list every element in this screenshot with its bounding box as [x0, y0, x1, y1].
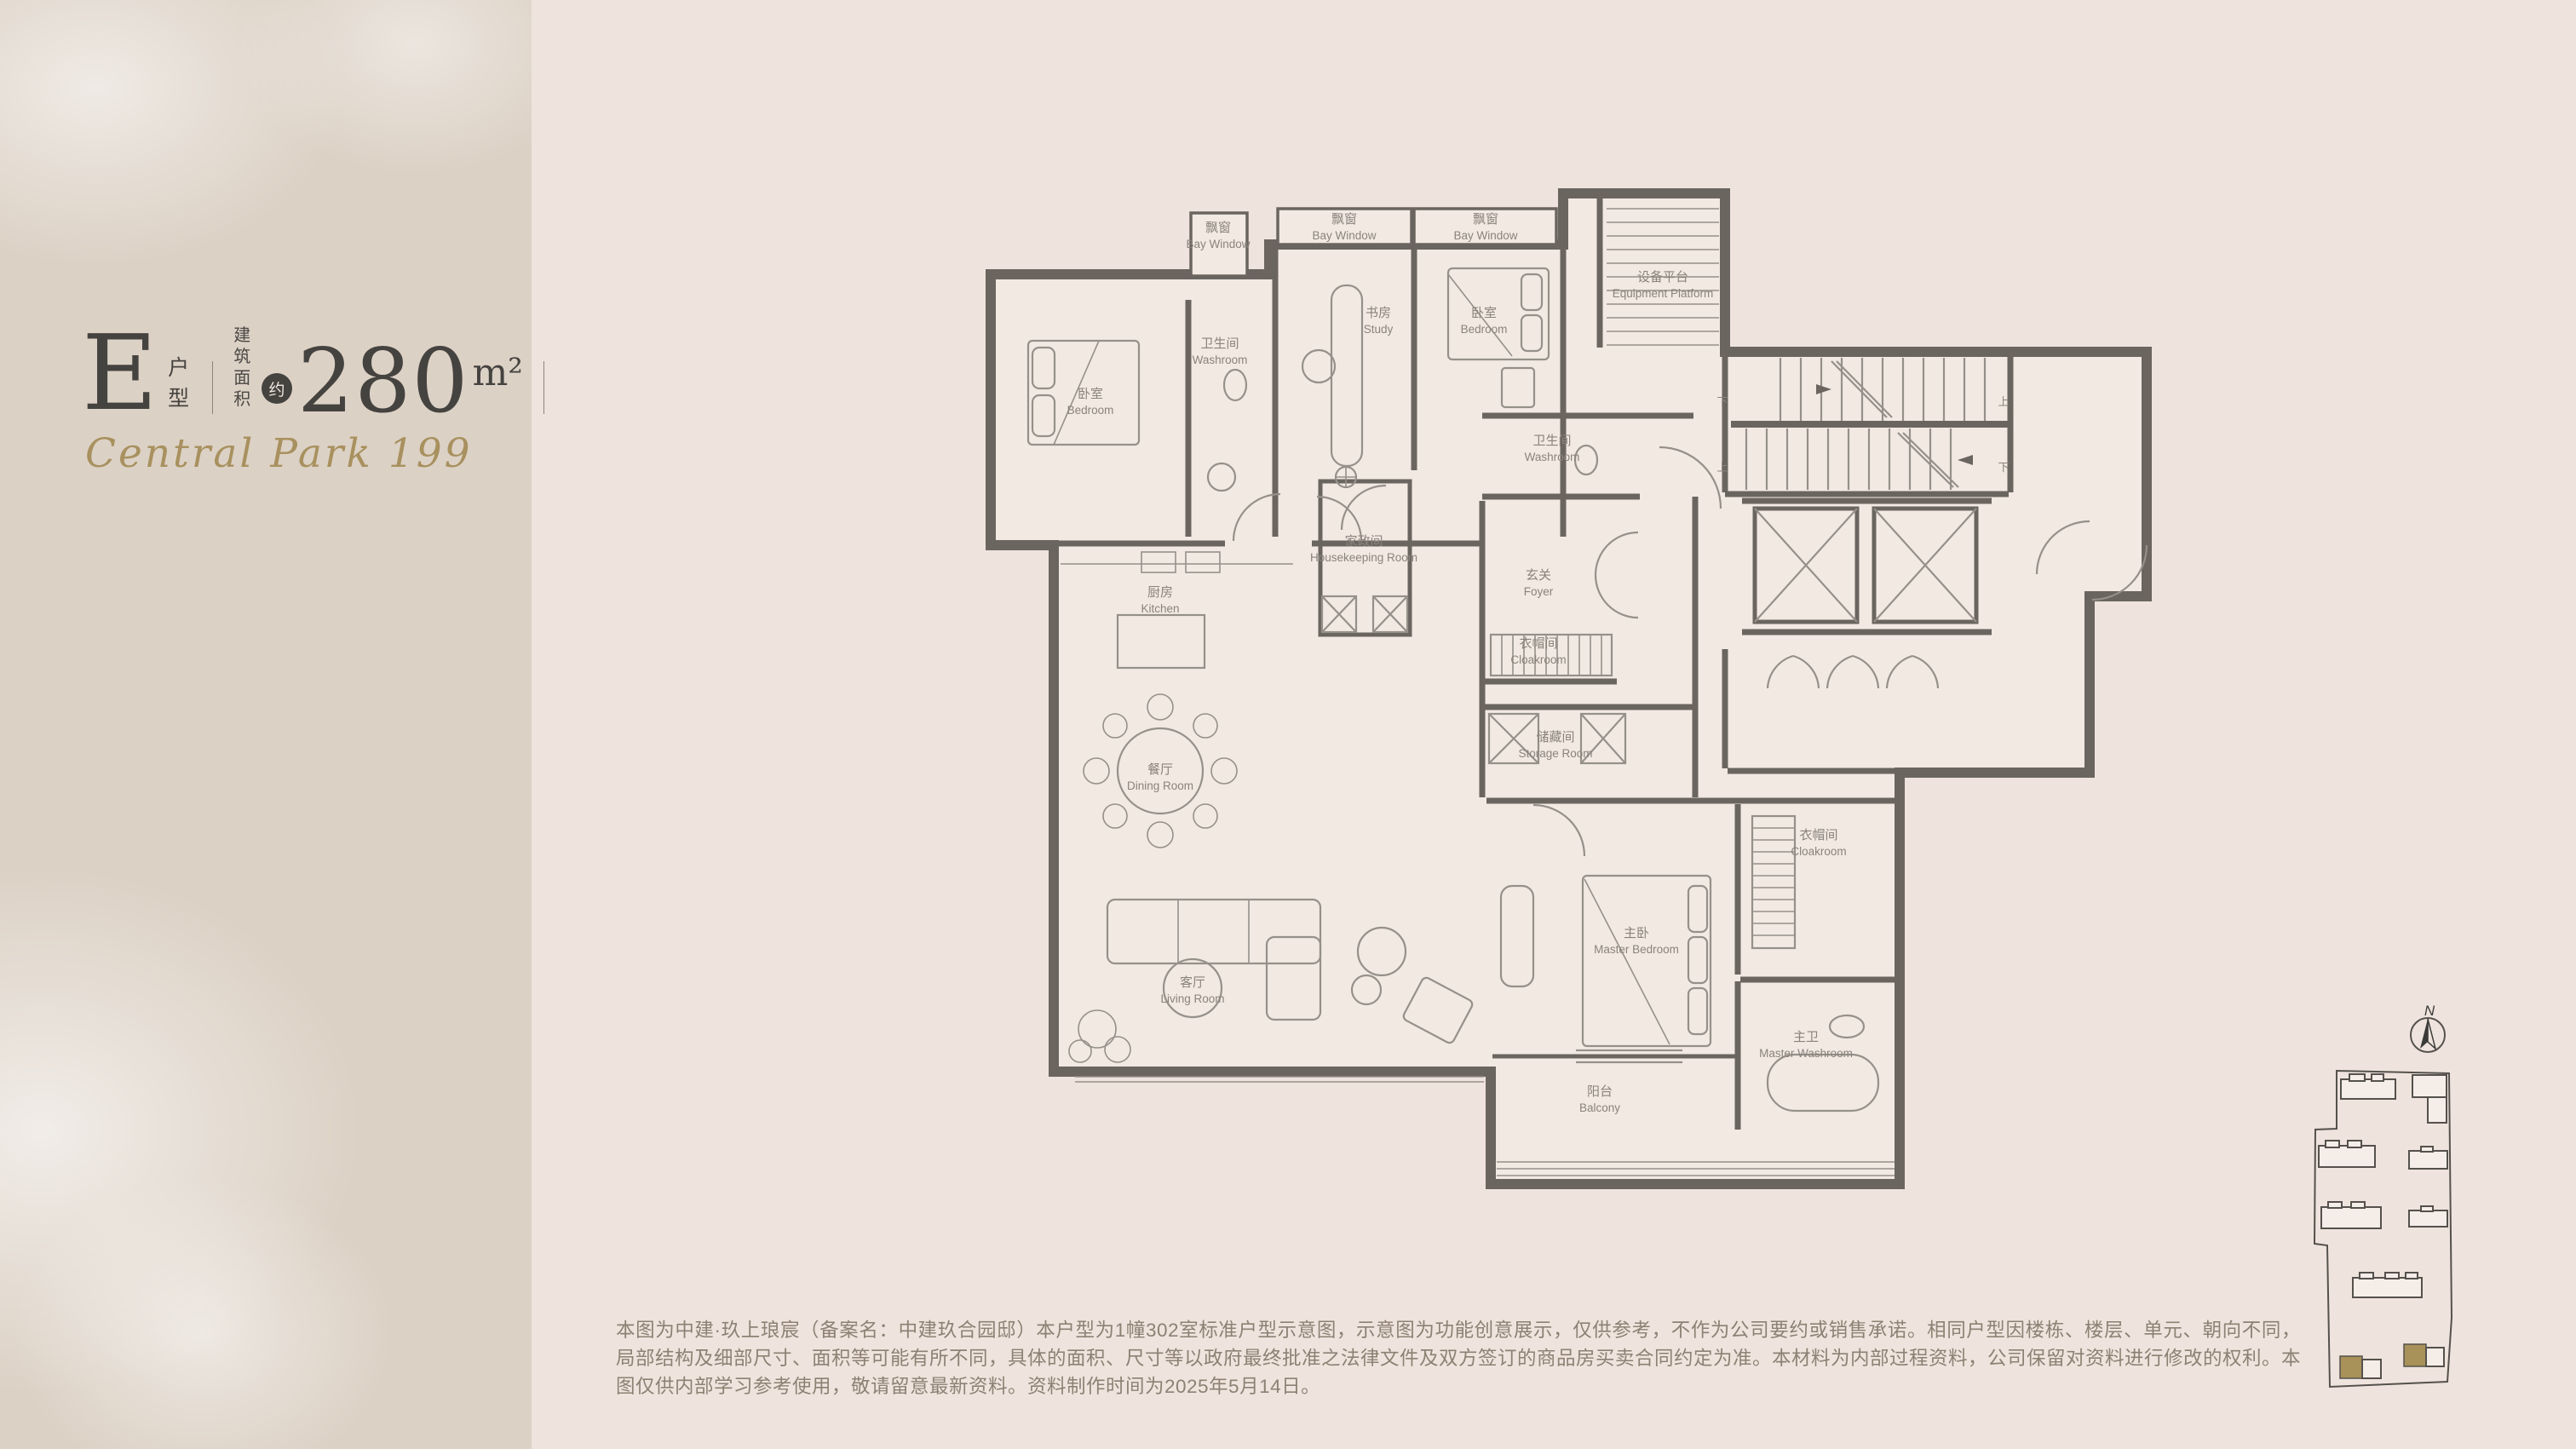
svg-text:厨房: 厨房: [1147, 585, 1173, 600]
svg-text:Cloakroom: Cloakroom: [1510, 653, 1566, 666]
svg-text:卧室: 卧室: [1078, 387, 1103, 401]
svg-text:玄关: 玄关: [1526, 568, 1551, 583]
highlighted-building: [2340, 1356, 2362, 1378]
svg-text:Equipment Platform: Equipment Platform: [1613, 287, 1714, 300]
svg-text:Dining Room: Dining Room: [1127, 779, 1193, 792]
svg-text:Bedroom: Bedroom: [1461, 323, 1508, 336]
highlighted-building: [2404, 1344, 2426, 1366]
svg-text:家政间: 家政间: [1344, 534, 1383, 549]
svg-text:飘窗: 飘窗: [1331, 211, 1357, 227]
site-map: N: [2314, 1003, 2452, 1387]
stair-up-label: 上: [1998, 395, 2009, 408]
svg-text:飘窗: 飘窗: [1205, 220, 1231, 235]
svg-text:Washroom: Washroom: [1193, 354, 1248, 366]
svg-text:Bay Window: Bay Window: [1186, 238, 1250, 250]
svg-text:Washroom: Washroom: [1525, 451, 1580, 463]
svg-text:衣帽间: 衣帽间: [1519, 636, 1557, 651]
svg-text:储藏间: 储藏间: [1536, 730, 1574, 745]
svg-text:Bedroom: Bedroom: [1067, 404, 1114, 417]
svg-text:主卫: 主卫: [1793, 1030, 1819, 1044]
svg-text:Master Bedroom: Master Bedroom: [1594, 943, 1679, 956]
svg-text:Bay Window: Bay Window: [1453, 229, 1517, 242]
svg-text:衣帽间: 衣帽间: [1799, 828, 1837, 842]
svg-text:Study: Study: [1364, 323, 1394, 336]
compass: N: [2411, 1003, 2445, 1052]
floor-plan-canvas: 下 上 上 下: [0, 0, 2576, 1449]
svg-text:飘窗: 飘窗: [1473, 211, 1498, 227]
compass-needle: [2420, 1019, 2428, 1049]
svg-text:Cloakroom: Cloakroom: [1791, 845, 1846, 858]
stair-down-label: 下: [1716, 395, 1728, 408]
svg-text:书房: 书房: [1366, 306, 1391, 320]
svg-text:Master Washroom: Master Washroom: [1759, 1047, 1853, 1060]
svg-text:Living Room: Living Room: [1160, 992, 1224, 1005]
site-buildings: [2319, 1074, 2447, 1378]
north-label: N: [2424, 1003, 2435, 1019]
svg-text:Foyer: Foyer: [1524, 585, 1554, 598]
svg-text:主卧: 主卧: [1624, 926, 1649, 940]
svg-text:Kitchen: Kitchen: [1141, 602, 1179, 615]
floor-plan: 下 上 上 下: [991, 193, 2147, 1184]
svg-text:餐厅: 餐厅: [1147, 762, 1173, 777]
svg-text:卫生间: 卫生间: [1532, 434, 1571, 448]
stair-up-label: 上: [1716, 461, 1728, 474]
unit-outline: [991, 193, 2147, 1184]
svg-text:Balcony: Balcony: [1579, 1101, 1620, 1114]
svg-text:Housekeeping Room: Housekeeping Room: [1310, 551, 1417, 564]
stair-down-label: 下: [1998, 461, 2009, 474]
svg-text:设备平台: 设备平台: [1637, 270, 1688, 285]
svg-text:客厅: 客厅: [1180, 975, 1205, 990]
disclaimer-text: 本图为中建·玖上琅宸（备案名：中建玖合园邸）本户型为1幢302室标准户型示意图，…: [616, 1316, 2301, 1400]
svg-text:阳台: 阳台: [1587, 1084, 1613, 1099]
svg-text:卫生间: 卫生间: [1200, 336, 1239, 351]
svg-text:Bay Window: Bay Window: [1312, 229, 1376, 242]
svg-text:卧室: 卧室: [1471, 306, 1497, 320]
svg-text:Storage Room: Storage Room: [1518, 747, 1592, 760]
